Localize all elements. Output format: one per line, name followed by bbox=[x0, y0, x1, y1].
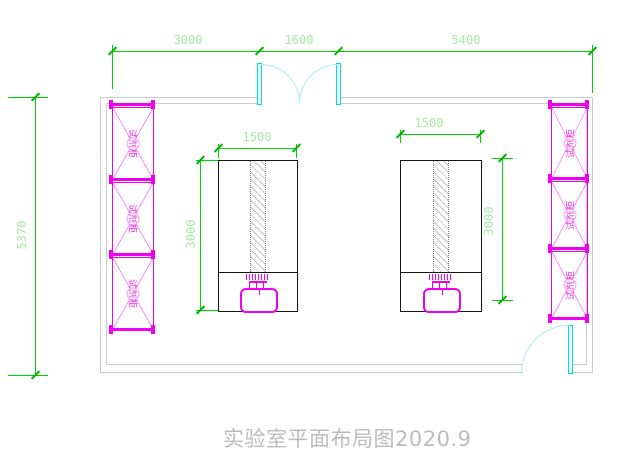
dim-text-bench-width: 1500 bbox=[235, 130, 279, 144]
wall-segment bbox=[570, 372, 593, 373]
cabinet-label: 试剂柜 bbox=[127, 278, 140, 308]
drawing-title: 实验室平面布局图2020.9 bbox=[223, 423, 471, 453]
wall-segment bbox=[106, 364, 523, 365]
dim-extension bbox=[8, 375, 48, 376]
cabinet-shelf-bar bbox=[110, 178, 154, 181]
cabinet-shelf-bar bbox=[110, 328, 154, 331]
cabinet-unit: 试剂柜 bbox=[551, 181, 588, 249]
wall-segment bbox=[100, 97, 260, 98]
wall-segment bbox=[100, 372, 523, 373]
dim-text-top-right: 5400 bbox=[444, 33, 488, 47]
dim-text-top-left: 3000 bbox=[166, 33, 210, 47]
wall-segment bbox=[592, 97, 593, 373]
cabinet-label: 试剂柜 bbox=[563, 200, 576, 230]
dim-line-bench-depth bbox=[200, 160, 201, 311]
cabinet-shelf-bar bbox=[110, 253, 154, 256]
dim-text-top-middle: 1600 bbox=[277, 33, 321, 47]
cabinet-shelf-bar bbox=[549, 103, 588, 106]
bench-divider bbox=[400, 272, 481, 273]
dim-line-bench-depth bbox=[502, 158, 503, 301]
cabinet-unit: 试剂柜 bbox=[112, 107, 154, 180]
dim-text-bench-width: 1500 bbox=[407, 116, 451, 130]
bench-center-strip bbox=[250, 161, 266, 272]
dim-line-left bbox=[35, 97, 36, 376]
door-swing-arc bbox=[521, 325, 569, 373]
door-swing-arc bbox=[261, 64, 300, 103]
cabinet-label: 试剂柜 bbox=[127, 203, 140, 233]
cabinet-shelf-bar bbox=[549, 177, 588, 180]
cabinet-shelf-bar bbox=[549, 247, 588, 250]
wall-segment bbox=[100, 97, 101, 373]
cabinet-unit: 试剂柜 bbox=[112, 182, 154, 255]
wall-segment bbox=[106, 103, 107, 365]
door-swing-arc bbox=[299, 64, 338, 103]
cabinet-label: 试剂柜 bbox=[127, 128, 140, 158]
wall-segment bbox=[338, 97, 593, 98]
drain-rack bbox=[429, 274, 453, 280]
cabinet-shelf-bar bbox=[110, 103, 154, 106]
dim-line-top bbox=[112, 51, 593, 52]
dim-extension bbox=[8, 97, 48, 98]
dim-text-bench-depth: 3000 bbox=[184, 206, 198, 262]
dim-line-bench-width bbox=[400, 134, 481, 135]
cabinet-unit: 试剂柜 bbox=[112, 257, 154, 330]
cabinet-unit: 试剂柜 bbox=[551, 251, 588, 319]
cabinet-unit: 试剂柜 bbox=[551, 107, 588, 179]
dim-line-bench-width bbox=[218, 148, 297, 149]
drain-rack bbox=[246, 274, 270, 280]
sink bbox=[240, 288, 278, 313]
dim-text-bench-depth: 3000 bbox=[482, 193, 496, 249]
cabinet-label: 试剂柜 bbox=[563, 128, 576, 158]
cabinet-shelf-bar bbox=[549, 317, 588, 320]
sink bbox=[423, 288, 461, 313]
cabinet-label: 试剂柜 bbox=[563, 270, 576, 300]
bench-divider bbox=[218, 272, 297, 273]
floorplan-canvas: 3000 1600 5400 5370 试剂柜 试剂柜 试剂柜 试剂柜 试剂柜 bbox=[0, 0, 619, 469]
bench-center-strip bbox=[433, 161, 449, 272]
dim-text-room-height: 5370 bbox=[15, 207, 29, 263]
